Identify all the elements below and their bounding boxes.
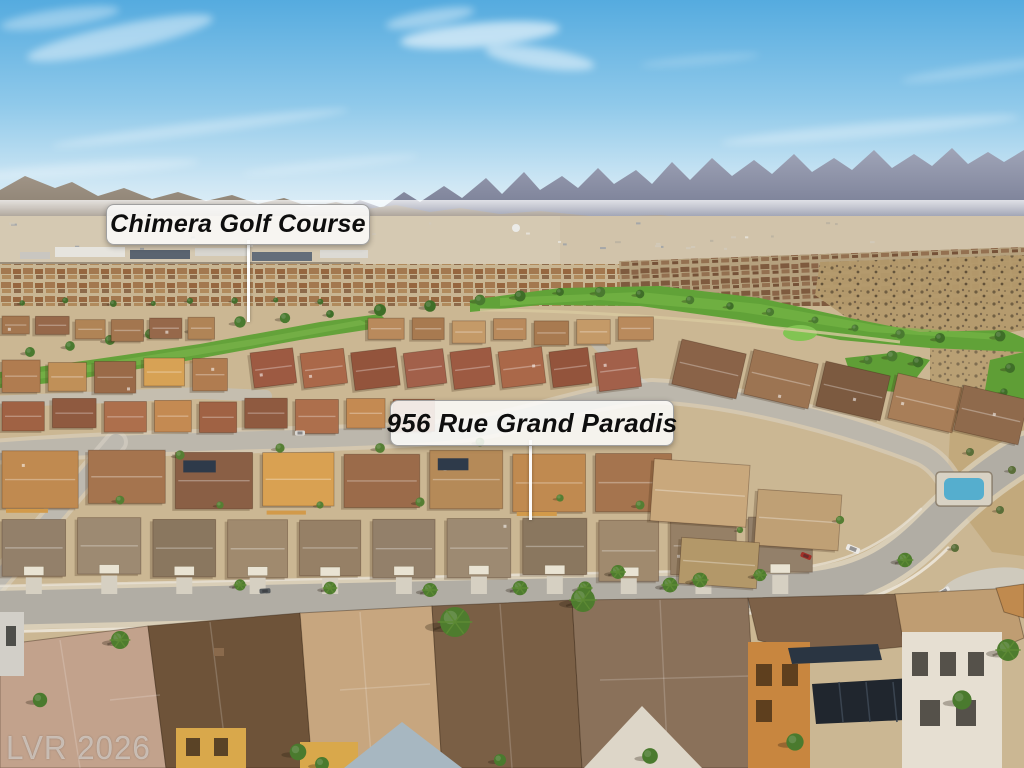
- callout-golf-course: Chimera Golf Course: [106, 204, 370, 245]
- water-tank: [512, 224, 520, 232]
- callout-leader-line-golf: [247, 240, 250, 322]
- aerial-photo: Chimera Golf Course 956 Rue Grand Paradi…: [0, 0, 1024, 768]
- backyard-pool: [936, 472, 992, 506]
- watermark: LVR 2026: [6, 729, 151, 767]
- scene-artwork: [0, 0, 1024, 768]
- callout-property-address: 956 Rue Grand Paradis: [390, 400, 674, 446]
- callout-leader-line-address: [529, 440, 532, 520]
